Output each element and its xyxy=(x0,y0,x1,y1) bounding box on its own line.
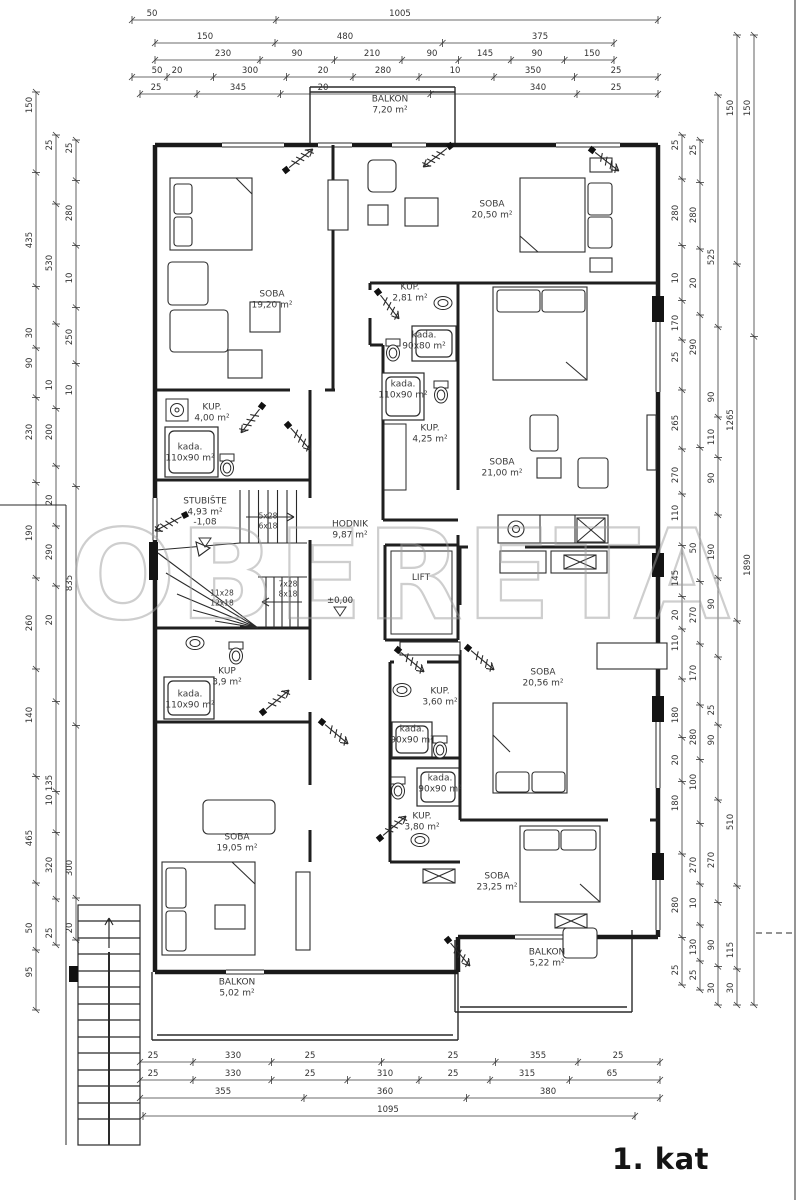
watermark-text: OBERETA xyxy=(70,504,734,648)
external-stairs xyxy=(69,905,140,1145)
floorplan-page: OBERETA 50100515048037523090210901459015… xyxy=(0,0,803,1200)
floor-title: 1. kat xyxy=(612,1142,709,1176)
floor-plan-svg: OBERETA xyxy=(0,0,803,1200)
